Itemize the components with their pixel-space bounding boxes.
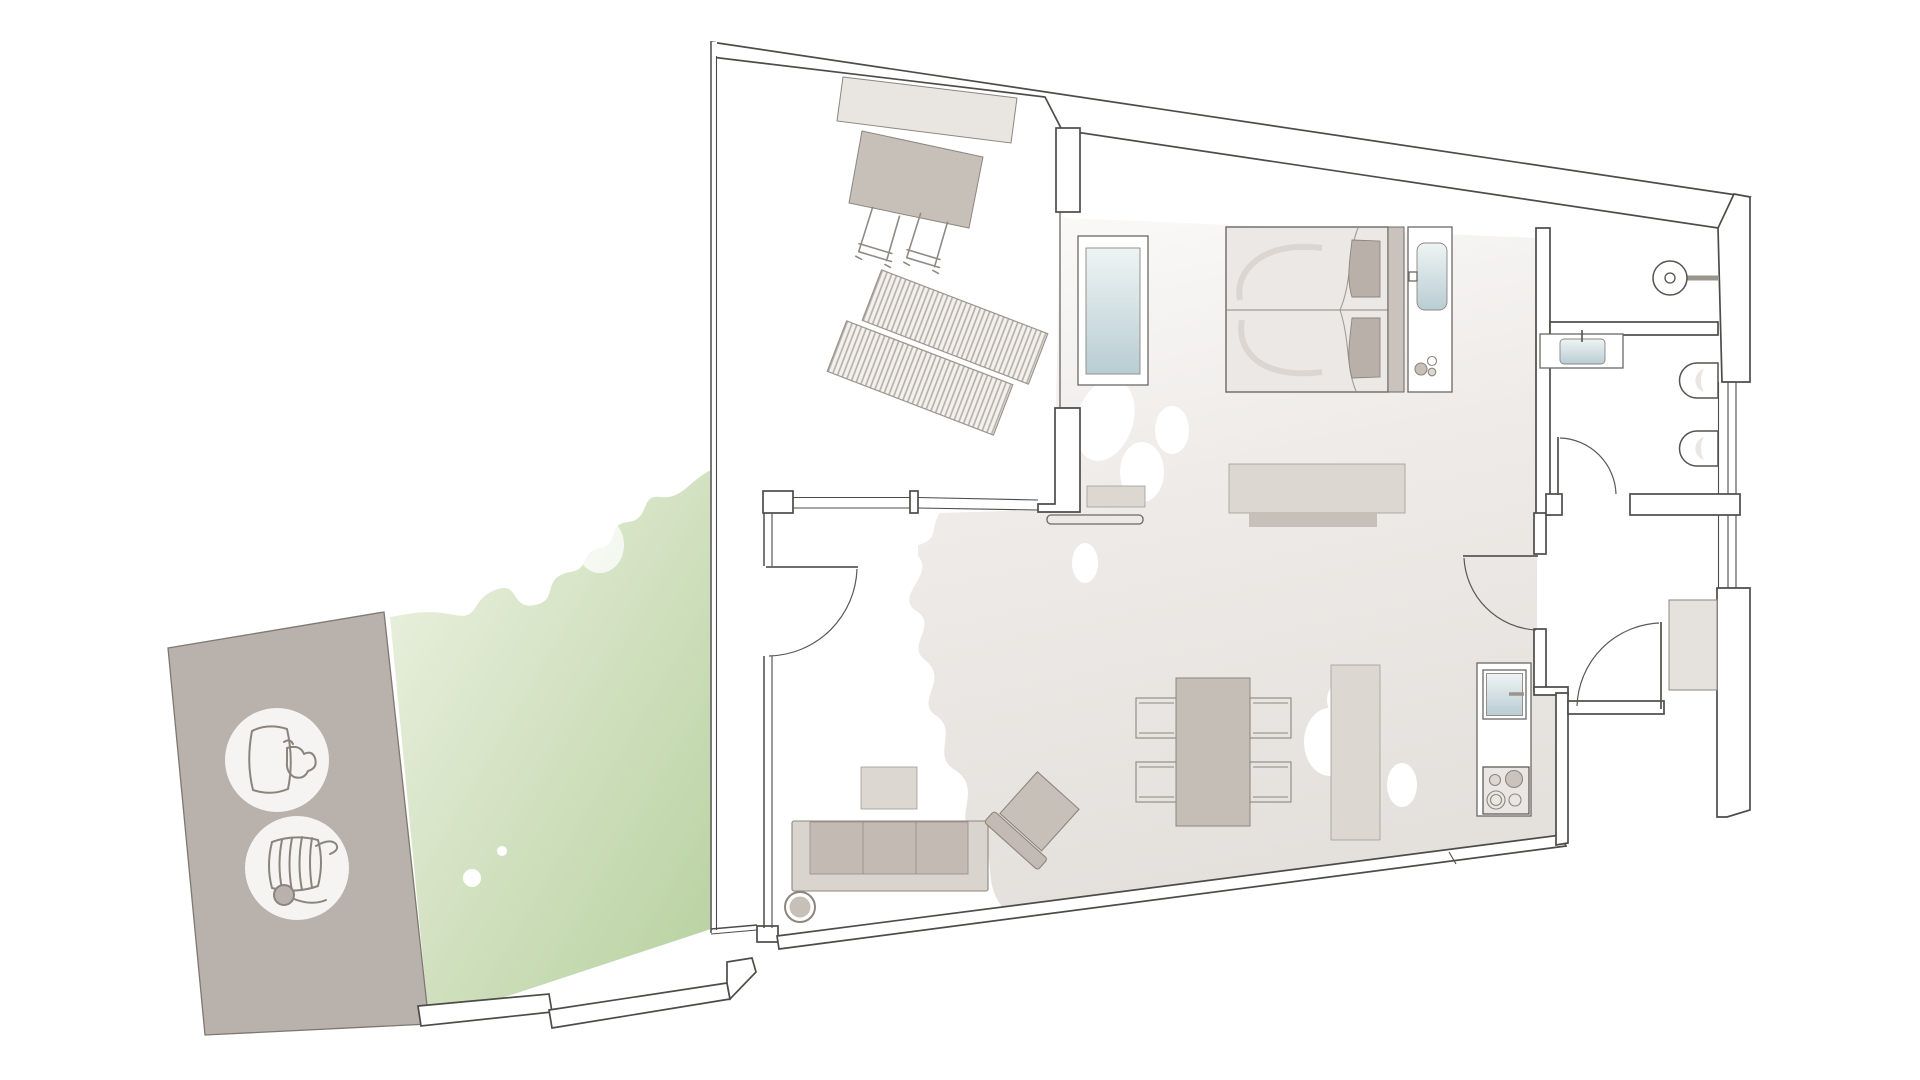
headboard — [1388, 227, 1404, 392]
icon-badge — [245, 816, 349, 920]
wall-shelf — [1087, 486, 1145, 507]
garden-dot — [497, 846, 507, 856]
sofa — [792, 821, 988, 891]
wall-terrace-bottom — [711, 930, 757, 934]
console-knob — [1409, 272, 1417, 281]
wall-corner-step — [757, 926, 778, 942]
stove — [1483, 767, 1529, 814]
wall-right-lower — [1717, 588, 1750, 817]
burner — [1506, 771, 1523, 788]
entry-closet — [1669, 600, 1717, 690]
terrace — [827, 77, 1048, 435]
kitchen — [1477, 663, 1531, 816]
sofa-cushion — [810, 822, 863, 874]
wc — [1653, 261, 1718, 295]
wall-lr-right — [1556, 693, 1568, 845]
garden-dot — [463, 869, 481, 887]
sideboard — [1331, 665, 1380, 840]
basin-drain — [1665, 273, 1675, 283]
glass-panel-pane — [1086, 248, 1140, 374]
toilet — [1680, 431, 1719, 466]
wall-hall-south — [1568, 701, 1664, 714]
lowboard-top — [1229, 464, 1405, 513]
bathroom-door — [1558, 437, 1616, 495]
wall-lr-top-pier — [910, 491, 918, 513]
path-bar — [549, 983, 730, 1028]
pillow — [1349, 318, 1380, 378]
garden-fade-blob — [576, 517, 624, 573]
washbasin — [1560, 339, 1605, 364]
wall-hall-west — [1534, 629, 1546, 691]
plant-shadow — [1155, 406, 1189, 454]
threshold-bar — [1047, 515, 1143, 524]
glass-panel — [1078, 236, 1148, 385]
lowboard-base — [1249, 513, 1377, 527]
burner — [1490, 775, 1501, 786]
icon-badge — [225, 708, 329, 812]
coffee-table — [861, 767, 917, 809]
path-step — [727, 958, 756, 999]
window-lr-top — [918, 498, 1038, 501]
wall-hall-west — [1534, 513, 1546, 554]
double-bed — [1226, 227, 1404, 392]
terrace-door — [766, 567, 858, 656]
console-object — [1415, 363, 1427, 375]
toilet — [1680, 363, 1719, 398]
wall-bath-west — [1536, 228, 1550, 515]
plant-shadow — [1387, 763, 1417, 807]
outdoor-table — [849, 131, 983, 228]
entry-door — [1577, 622, 1661, 709]
wall-bath-south-nib — [1546, 494, 1562, 515]
patio — [168, 612, 429, 1035]
console-object — [1428, 368, 1436, 376]
wall-lr-top-pillar — [763, 491, 793, 513]
garden-fade-blob — [585, 358, 695, 482]
sofa-cushion — [916, 822, 968, 874]
bathroom — [1540, 330, 1718, 466]
wall-partition-lower — [1038, 408, 1080, 512]
garden — [390, 358, 711, 1022]
floor-lamp — [785, 892, 815, 922]
wall-partition-pillar — [1056, 128, 1080, 212]
wall-terrace-bottom — [711, 925, 757, 929]
wall-right-upper — [1718, 194, 1750, 382]
pillow — [1349, 240, 1380, 297]
wall-wc-south — [1550, 322, 1718, 335]
window-lr-top — [918, 508, 1038, 510]
dining-table — [1176, 678, 1250, 826]
sofa-cushion — [863, 822, 916, 874]
wall-bath-south — [1630, 494, 1740, 515]
hallway — [1669, 600, 1717, 690]
outdoor-chair — [855, 206, 900, 267]
plant-shadow — [1072, 543, 1098, 583]
console-mirror — [1417, 243, 1447, 310]
garden-fade-blob — [419, 520, 491, 600]
bedside-console — [1408, 227, 1452, 392]
floor-plan — [0, 0, 1920, 1080]
